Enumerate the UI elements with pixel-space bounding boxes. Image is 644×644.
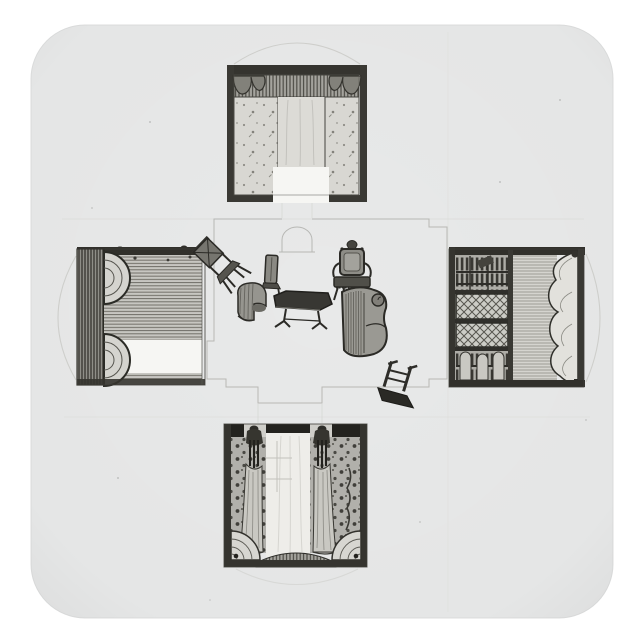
lattice-door-bottom <box>456 323 508 347</box>
wall-right <box>449 247 585 387</box>
top-wall-alcove <box>278 97 325 167</box>
sheer-curtain <box>266 433 310 557</box>
wall-left <box>77 246 205 387</box>
chaise-longue <box>342 287 387 356</box>
bottom-wall-base <box>224 560 367 567</box>
right-wall-edge <box>578 249 584 387</box>
sticker[interactable] <box>31 25 613 618</box>
right-wall-base <box>449 380 585 387</box>
screenshot-canvas <box>0 0 644 644</box>
right-scallop-border <box>549 250 580 385</box>
lattice-door-top <box>456 294 508 319</box>
top-wallpaper-left <box>234 97 278 195</box>
wall-bottom <box>224 424 367 567</box>
left-wall-base <box>77 379 205 385</box>
top-wall-cutout <box>273 167 329 203</box>
left-drapery-border <box>77 249 104 385</box>
right-wall-cornice <box>449 247 585 255</box>
wall-top <box>227 65 367 203</box>
top-wallpaper-right <box>325 97 359 195</box>
bookcase <box>455 250 513 382</box>
top-wall-cornice <box>227 65 367 75</box>
